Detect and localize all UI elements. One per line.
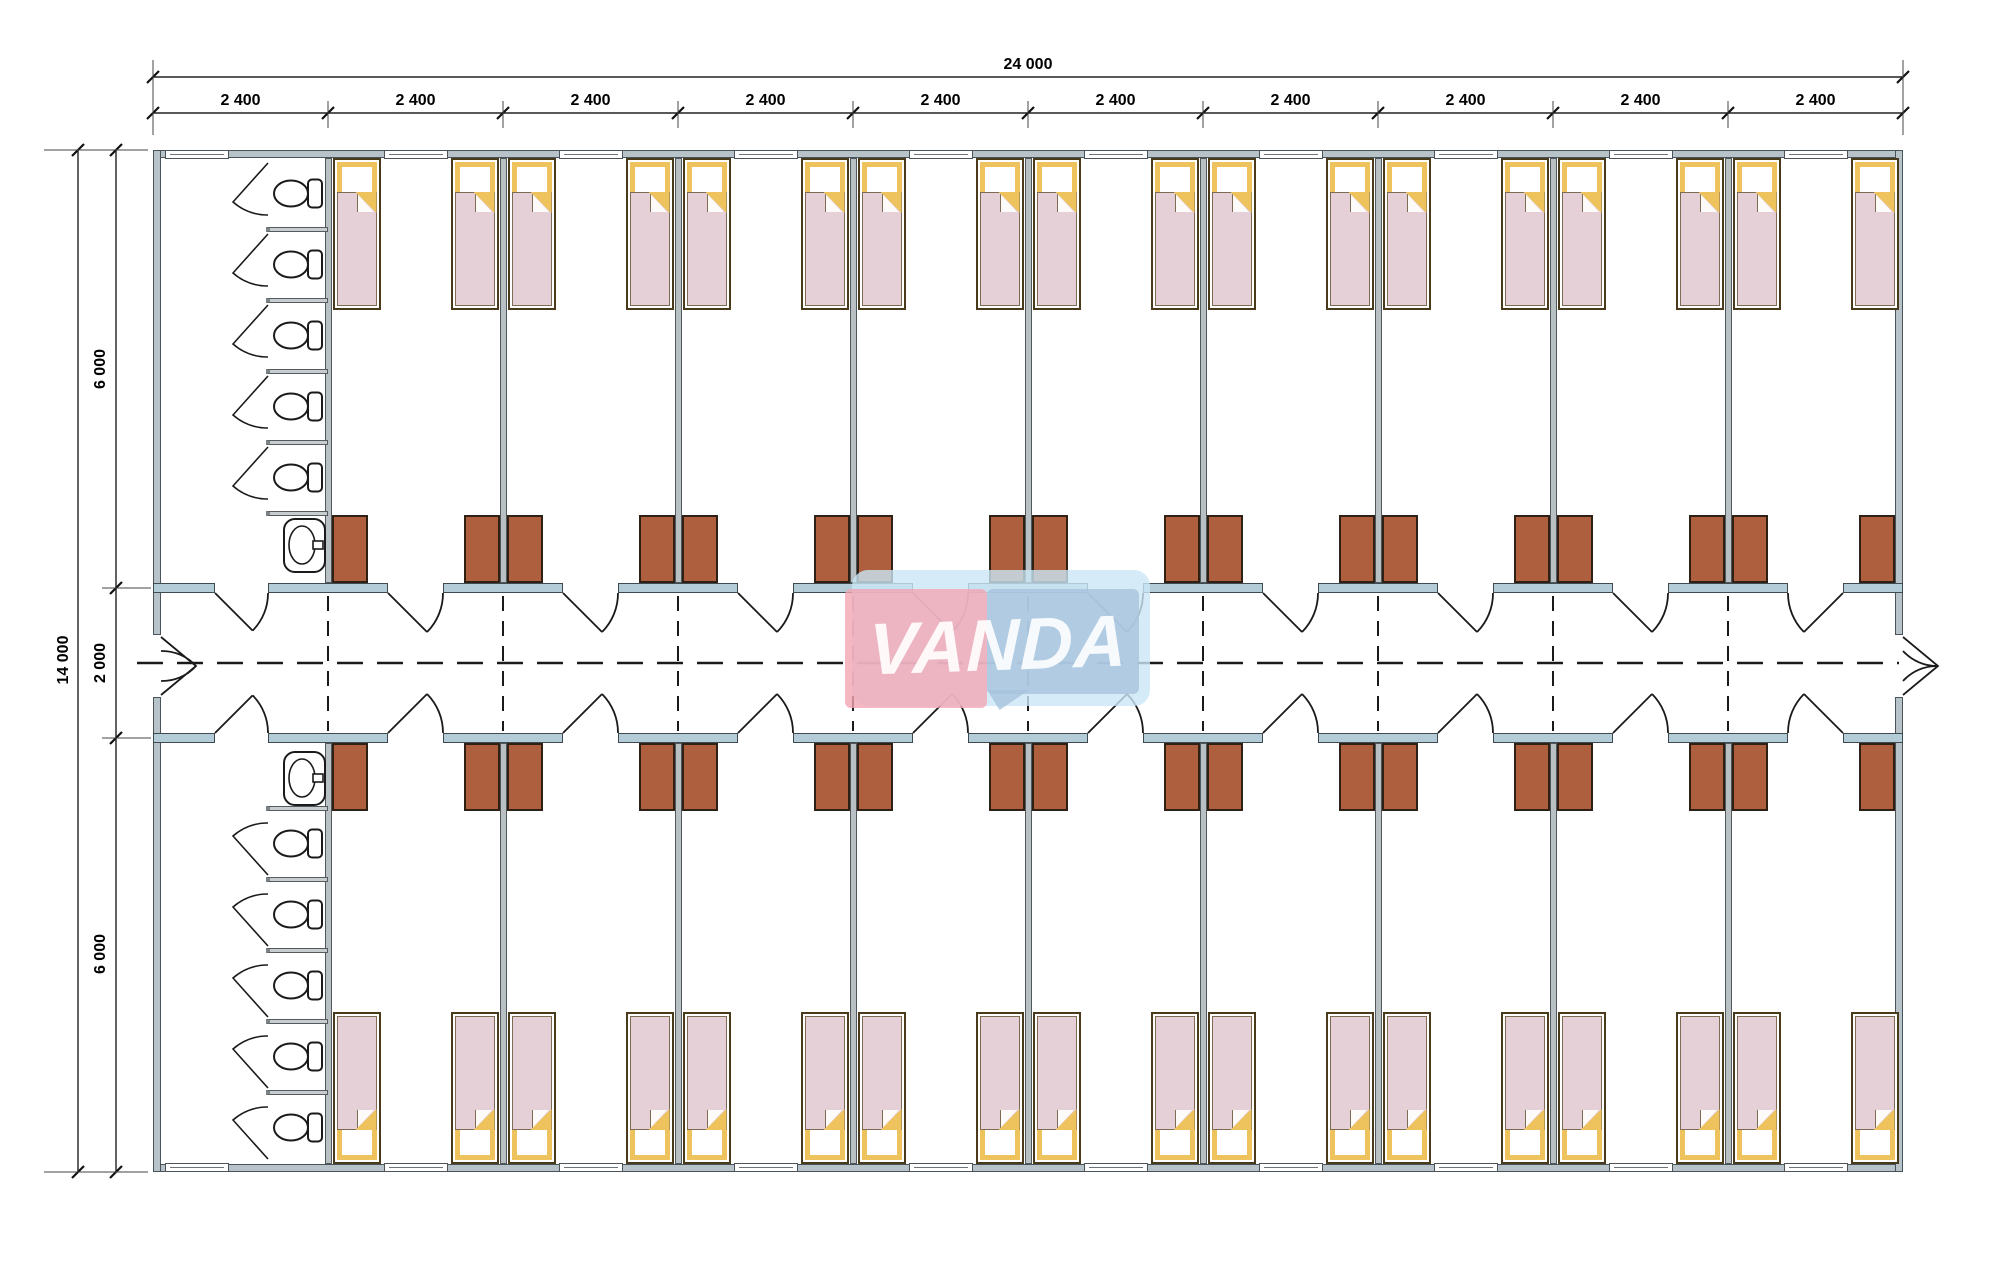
door-swing (563, 694, 618, 733)
plan-linework (0, 0, 2000, 1285)
dim-module-width: 2 400 (1728, 92, 1903, 110)
door-swing (1438, 593, 1493, 632)
dim-module-width: 2 400 (328, 92, 503, 110)
stall-door-swing (233, 234, 268, 286)
toilet-bowl (274, 902, 308, 928)
door-swing (1788, 593, 1843, 632)
stall-door-swing (233, 163, 268, 215)
door-swing (1263, 694, 1318, 733)
washbasin-bowl (289, 526, 315, 564)
dim-upper-wing: 6 000 (92, 309, 110, 429)
dim-module-width: 2 400 (853, 92, 1028, 110)
toilet-bowl (274, 973, 308, 999)
washbasin-bowl (289, 759, 315, 797)
door-swing (1438, 694, 1493, 733)
dimension-lines (44, 60, 1909, 1178)
stall-door-swing (233, 965, 268, 1017)
toilet-icon (308, 251, 322, 279)
dim-module-width: 2 400 (1378, 92, 1553, 110)
toilet-bowl (274, 181, 308, 207)
door-swing (563, 593, 618, 632)
dim-module-width: 2 400 (503, 92, 678, 110)
door-swing (1263, 593, 1318, 632)
door-swing (913, 694, 968, 733)
toilet-bowl (274, 1115, 308, 1141)
stall-door-swing (233, 894, 268, 946)
stall-door-swing (233, 1036, 268, 1088)
stall-door-swing (233, 1107, 268, 1159)
toilet-icon (308, 972, 322, 1000)
entrance-double-door-left (161, 637, 196, 695)
entrance-double-door-right (1903, 637, 1938, 695)
washbasin-tap (313, 774, 323, 782)
dim-module-width: 2 400 (1553, 92, 1728, 110)
toilet-icon (308, 180, 322, 208)
door-swing (738, 593, 793, 632)
dim-module-width: 2 400 (678, 92, 853, 110)
door-swing (388, 593, 443, 632)
stall-door-swing (233, 305, 268, 357)
toilet-icon (308, 830, 322, 858)
dim-module-width: 2 400 (1028, 92, 1203, 110)
toilet-bowl (274, 831, 308, 857)
door-swing (738, 694, 793, 733)
stall-door-swing (233, 447, 268, 499)
fixtures (274, 180, 325, 1142)
toilet-bowl (274, 252, 308, 278)
toilet-icon (308, 393, 322, 421)
toilet-icon (308, 1114, 322, 1142)
toilet-icon (308, 464, 322, 492)
dim-corridor: 2 000 (92, 603, 110, 723)
dim-lower-wing: 6 000 (92, 894, 110, 1014)
floor-plan-canvas: 24 000 2 4002 4002 4002 4002 4002 4002 4… (0, 0, 2000, 1285)
door-swing (913, 593, 968, 632)
toilet-icon (308, 322, 322, 350)
door-swing (215, 695, 268, 733)
dim-overall-height: 14 000 (55, 600, 73, 720)
door-swing (1088, 694, 1143, 733)
door-swing (1088, 593, 1143, 632)
dim-module-width: 2 400 (153, 92, 328, 110)
door-swing (1613, 593, 1668, 632)
toilet-icon (308, 1043, 322, 1071)
toilet-bowl (274, 323, 308, 349)
stall-door-swing (233, 823, 268, 875)
door-swing (1788, 694, 1843, 733)
door-swing (1613, 694, 1668, 733)
toilet-bowl (274, 394, 308, 420)
toilet-bowl (274, 465, 308, 491)
dim-overall-width: 24 000 (153, 56, 1903, 74)
door-swing (388, 694, 443, 733)
doors (161, 163, 1938, 1159)
washbasin-tap (313, 541, 323, 549)
toilet-icon (308, 901, 322, 929)
stall-door-swing (233, 376, 268, 428)
door-swing (215, 593, 268, 631)
dim-module-width: 2 400 (1203, 92, 1378, 110)
toilet-bowl (274, 1044, 308, 1070)
